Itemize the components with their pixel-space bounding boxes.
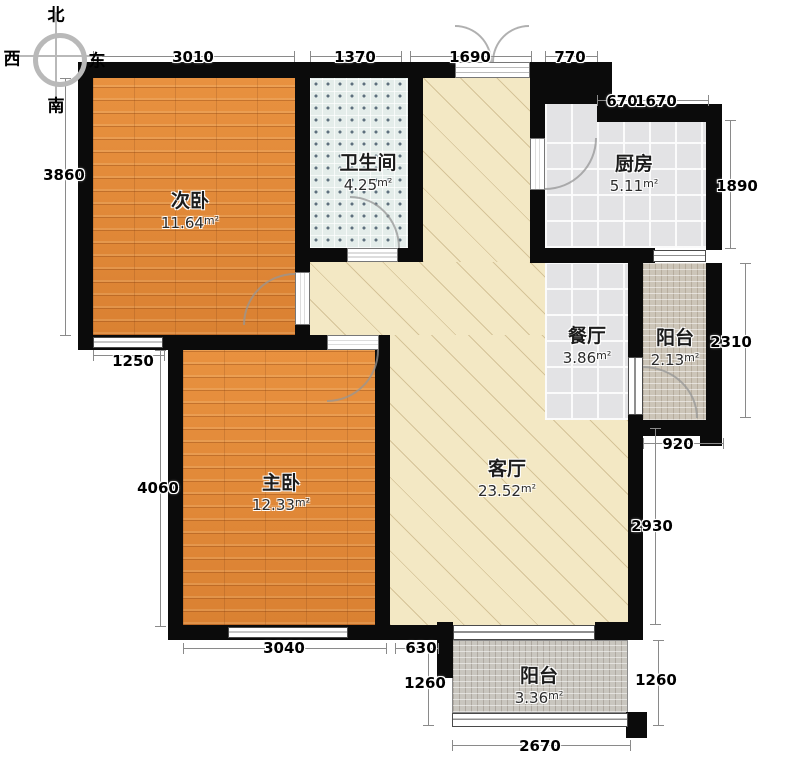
room-label-kitchen: 厨房 5.11m²	[610, 153, 659, 196]
window-dining-balcony	[628, 357, 643, 415]
dim-label: 2930	[631, 517, 673, 535]
window-balcony-south	[452, 713, 628, 727]
floor-plan: 次卧 11.64m² 卫生间 4.25m² 厨房 5.11m² 餐厅 3.86m…	[0, 0, 800, 766]
room-floor-entry-corridor	[423, 78, 530, 262]
wall-segment	[375, 335, 390, 640]
dim-label: 1260	[404, 674, 446, 692]
compass-east-label: 东	[89, 47, 106, 72]
dim-label: 920	[662, 435, 693, 453]
room-name: 阳台	[651, 327, 700, 351]
compass-circle-icon	[33, 33, 87, 87]
wall-segment	[295, 325, 310, 350]
wall-segment	[408, 62, 423, 262]
room-area: 4.25m²	[339, 176, 396, 195]
wall-segment	[628, 250, 643, 357]
room-name: 主卧	[252, 472, 310, 496]
door-master-bedroom	[327, 335, 379, 350]
window-secondary-bedroom	[93, 337, 163, 348]
dim-label: 1690	[449, 48, 491, 66]
sliding-door-living-balcony	[453, 625, 595, 640]
room-area: 23.52m²	[478, 482, 536, 501]
room-label-secondary-bedroom: 次卧 11.64m²	[161, 190, 219, 233]
wall-segment	[78, 62, 93, 350]
window-master-bedroom	[228, 627, 348, 638]
dim-label: 2670	[519, 737, 561, 755]
room-name: 阳台	[515, 665, 564, 689]
dim-line	[60, 78, 71, 336]
wall-segment	[437, 622, 453, 678]
dim-label: 3860	[43, 166, 85, 184]
wall-segment	[530, 190, 545, 250]
room-name: 卫生间	[339, 152, 396, 176]
wall-segment	[295, 248, 350, 262]
room-area: 5.11m²	[610, 177, 659, 196]
room-area: 3.86m²	[563, 349, 612, 368]
room-label-bathroom: 卫生间 4.25m²	[339, 152, 396, 195]
door-bathroom	[347, 248, 398, 262]
wall-segment	[530, 248, 655, 263]
room-label-living-room: 客厅 23.52m²	[478, 458, 536, 501]
wall-segment	[395, 248, 423, 262]
room-area: 2.13m²	[651, 351, 700, 370]
door-kitchen	[530, 138, 545, 190]
wall-segment	[295, 62, 310, 272]
wall-segment	[530, 62, 545, 138]
compass-west-label: 西	[4, 45, 21, 70]
dim-label: 770	[554, 48, 585, 66]
room-name: 餐厅	[563, 325, 612, 349]
room-label-dining-room: 餐厅 3.86m²	[563, 325, 612, 368]
compass-south-label: 南	[48, 92, 65, 117]
dim-label: 1890	[716, 177, 758, 195]
room-name: 客厅	[478, 458, 536, 482]
window-kitchen-balcony	[653, 250, 706, 262]
dim-label: 4060	[137, 479, 179, 497]
room-area: 11.64m²	[161, 214, 219, 233]
dim-label: 630	[405, 639, 436, 657]
room-floor-kitchen-upper	[545, 104, 597, 124]
dim-label: 3010	[172, 48, 214, 66]
dim-label: 1260	[635, 671, 677, 689]
room-label-balcony-east: 阳台 2.13m²	[651, 327, 700, 370]
room-label-master-bedroom: 主卧 12.33m²	[252, 472, 310, 515]
compass-north-label: 北	[48, 1, 65, 26]
room-name: 次卧	[161, 190, 219, 214]
wall-segment	[626, 712, 647, 738]
door-secondary-bedroom	[295, 272, 310, 325]
room-area: 3.36m²	[515, 689, 564, 708]
dim-label: 1670	[635, 92, 677, 110]
dim-label: 670	[606, 92, 637, 110]
dim-label: 2310	[710, 333, 752, 351]
dim-label: 3040	[263, 639, 305, 657]
room-label-balcony-south: 阳台 3.36m²	[515, 665, 564, 708]
room-area: 12.33m²	[252, 496, 310, 515]
dim-label: 1370	[334, 48, 376, 66]
room-name: 厨房	[610, 153, 659, 177]
dim-label: 1250	[112, 352, 154, 370]
wall-segment	[595, 622, 643, 640]
